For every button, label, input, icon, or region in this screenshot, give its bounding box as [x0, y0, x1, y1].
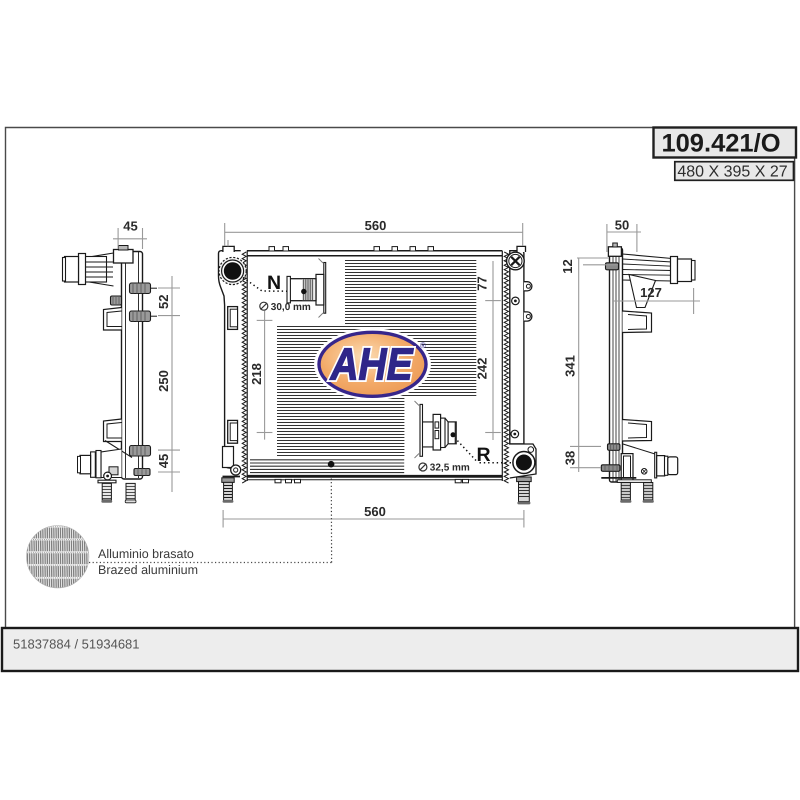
svg-text:12: 12	[560, 259, 575, 273]
svg-text:50: 50	[615, 218, 629, 233]
svg-text:AHE: AHE	[330, 339, 415, 390]
svg-text:51837884 / 51934681: 51837884 / 51934681	[13, 637, 140, 652]
svg-text:242: 242	[475, 358, 490, 380]
svg-text:77: 77	[475, 276, 490, 290]
svg-text:250: 250	[156, 370, 171, 392]
svg-text:Brazed aluminium: Brazed aluminium	[98, 563, 198, 577]
svg-text:560: 560	[364, 504, 386, 519]
svg-text:560: 560	[365, 218, 387, 233]
svg-text:30,0 mm: 30,0 mm	[271, 302, 311, 313]
svg-text:45: 45	[156, 454, 171, 468]
svg-text:341: 341	[563, 355, 578, 377]
svg-text:45: 45	[123, 219, 137, 234]
svg-text:32,5 mm: 32,5 mm	[430, 463, 470, 474]
svg-text:®: ®	[420, 341, 426, 350]
svg-text:Alluminio brasato: Alluminio brasato	[98, 547, 194, 561]
svg-text:480 X 395 X 27: 480 X 395 X 27	[677, 164, 787, 181]
svg-text:218: 218	[249, 363, 264, 385]
svg-text:109.421/O: 109.421/O	[661, 130, 780, 158]
svg-text:52: 52	[156, 295, 171, 309]
svg-text:38: 38	[563, 451, 578, 465]
svg-text:127: 127	[640, 285, 662, 300]
